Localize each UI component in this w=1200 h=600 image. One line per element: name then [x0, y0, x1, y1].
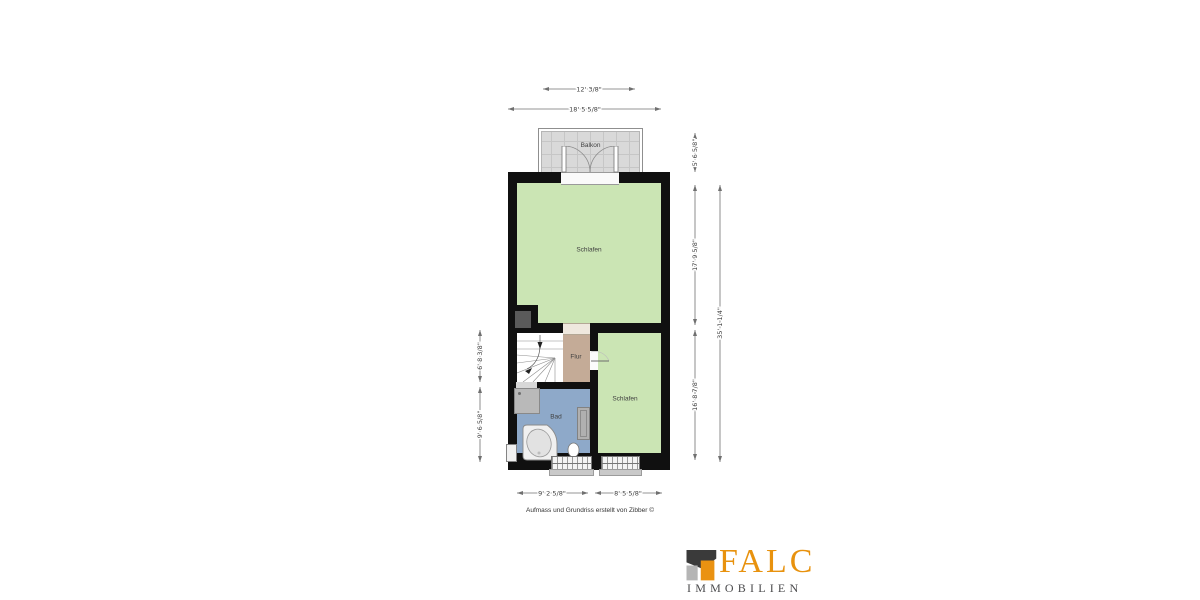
- falc-logo-icon: [686, 550, 718, 581]
- falc-logo-subtitle: IMMOBILIEN: [687, 582, 802, 594]
- dim-left-upper: 6' 8 3/8": [476, 342, 484, 370]
- dim-top-outer: 18' 5 5/8": [569, 105, 601, 113]
- dim-right-lower: 16' 8 7/8": [691, 379, 699, 411]
- dim-left-lower: 9' 6 5/8": [476, 411, 484, 439]
- dim-right-total: 35' 1 1/4": [716, 307, 724, 339]
- dim-top-inner: 12' 3/8": [576, 85, 602, 93]
- footer-note: Aufmass und Grundriss erstellt von Zibbe…: [509, 507, 671, 514]
- dim-bottom-left: 9' 2 5/8": [538, 489, 566, 497]
- dim-right-upper: 17' 9 5/8": [691, 239, 699, 271]
- floorplan-page: Balkon: [0, 0, 1200, 600]
- dim-right-balcony: 5' 6 5/8": [691, 139, 699, 167]
- dim-bottom-right: 8' 5 5/8": [614, 489, 642, 497]
- falc-logo-brand: FALC: [719, 545, 815, 579]
